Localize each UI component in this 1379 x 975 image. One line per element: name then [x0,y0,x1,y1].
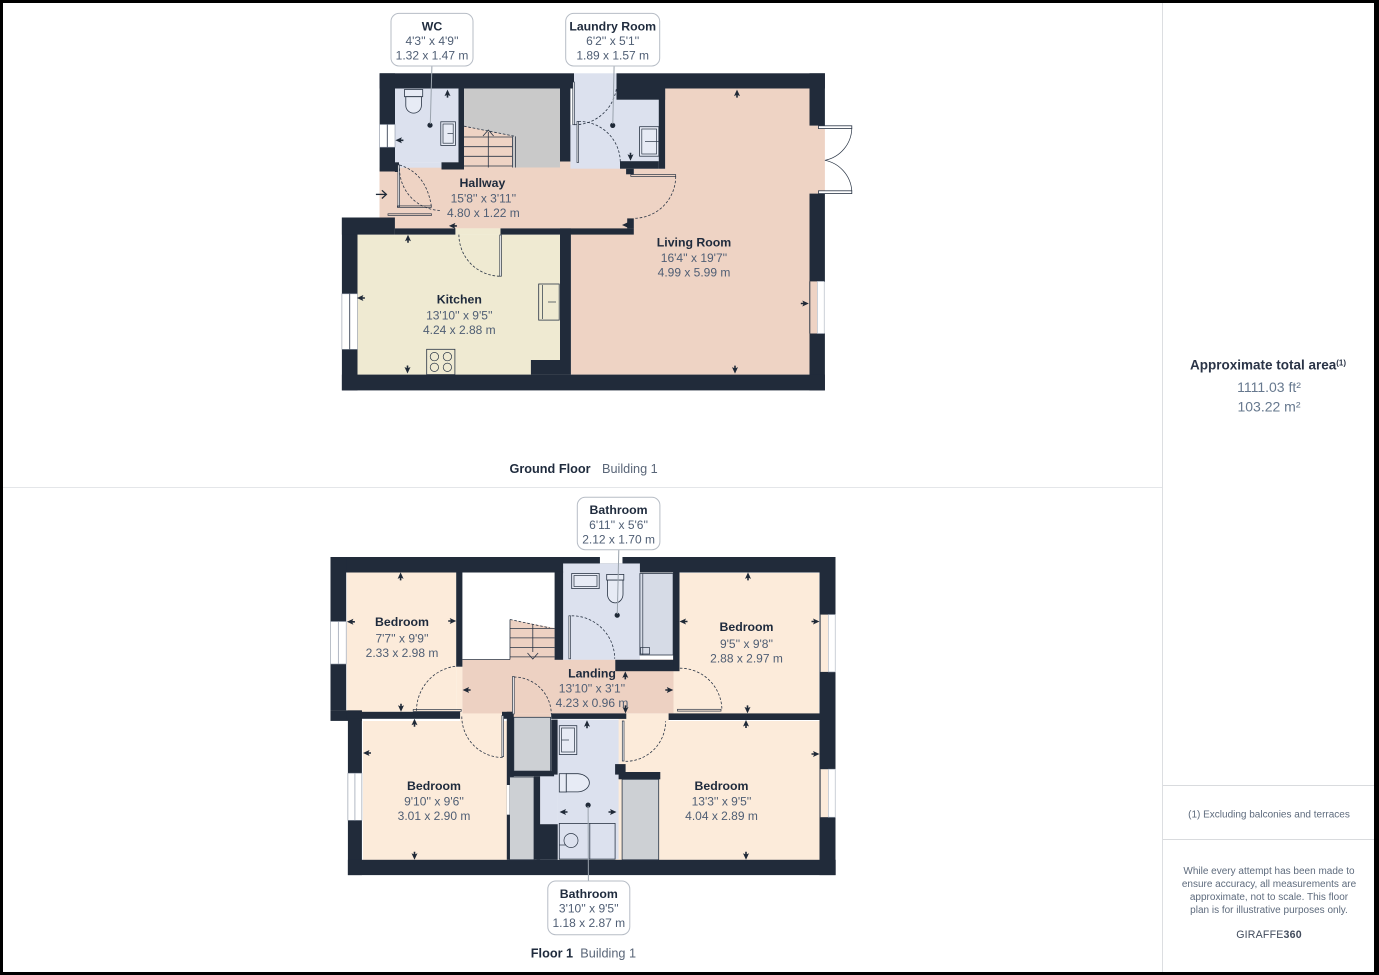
svg-text:plan is for illustrative purpo: plan is for illustrative purposes only. [1190,905,1348,916]
svg-text:2.88 x 2.97 m: 2.88 x 2.97 m [710,651,783,665]
svg-text:9'5'' x 9'8'': 9'5'' x 9'8'' [720,637,773,651]
svg-text:Building 1: Building 1 [602,462,658,476]
svg-text:Laundry Room: Laundry Room [569,19,656,33]
svg-text:16'4'' x 19'7'': 16'4'' x 19'7'' [661,251,727,265]
svg-text:Living Room: Living Room [657,235,732,249]
svg-text:Floor 1: Floor 1 [531,947,573,961]
svg-text:2.33 x 2.98 m: 2.33 x 2.98 m [366,646,439,660]
svg-text:Bathroom: Bathroom [560,887,618,901]
svg-text:4.23 x 0.96 m: 4.23 x 0.96 m [556,696,629,710]
svg-text:ensure accuracy, all measureme: ensure accuracy, all measurements are [1182,879,1357,890]
svg-text:Building 1: Building 1 [580,947,636,961]
svg-text:Kitchen: Kitchen [437,293,482,307]
svg-text:Bedroom: Bedroom [720,620,774,634]
svg-text:Bathroom: Bathroom [590,503,648,517]
svg-text:15'8'' x 3'11'': 15'8'' x 3'11'' [451,192,517,206]
svg-text:103.22 m²: 103.22 m² [1237,399,1300,415]
svg-text:While every attempt has been m: While every attempt has been made to [1183,866,1355,877]
svg-text:Landing: Landing [568,666,616,680]
svg-text:approximate, not to scale. Thi: approximate, not to scale. This floor [1190,892,1349,903]
svg-text:(1) Excluding balconies and te: (1) Excluding balconies and terraces [1188,810,1350,821]
svg-text:4'3'' x 4'9'': 4'3'' x 4'9'' [405,34,458,48]
svg-text:9'10'' x 9'6'': 9'10'' x 9'6'' [404,795,464,809]
svg-text:1111.03 ft²: 1111.03 ft² [1237,379,1301,395]
svg-text:6'11'' x 5'6'': 6'11'' x 5'6'' [589,518,648,532]
svg-text:Bedroom: Bedroom [695,779,749,793]
svg-text:4.24 x 2.88 m: 4.24 x 2.88 m [423,323,496,337]
svg-text:13'10'' x 9'5'': 13'10'' x 9'5'' [426,308,492,322]
svg-text:4.80 x 1.22 m: 4.80 x 1.22 m [447,206,520,220]
svg-text:Hallway: Hallway [460,176,506,190]
svg-text:WC: WC [422,19,443,33]
svg-text:3.01 x 2.90 m: 3.01 x 2.90 m [398,809,471,823]
svg-text:GIRAFFE360: GIRAFFE360 [1236,929,1302,941]
svg-text:Bedroom: Bedroom [407,779,461,793]
svg-text:1.18 x 2.87 m: 1.18 x 2.87 m [552,916,625,930]
svg-text:6'2'' x 5'1'': 6'2'' x 5'1'' [586,34,639,48]
svg-text:1.32 x 1.47 m: 1.32 x 1.47 m [396,49,469,63]
svg-text:3'10'' x 9'5'': 3'10'' x 9'5'' [559,902,619,916]
svg-text:13'10'' x 3'1'': 13'10'' x 3'1'' [559,682,625,696]
svg-text:2.12 x 1.70 m: 2.12 x 1.70 m [582,533,655,547]
svg-text:Approximate total area(1): Approximate total area(1) [1190,358,1346,373]
svg-text:7'7'' x 9'9'': 7'7'' x 9'9'' [375,631,428,645]
svg-text:1.89 x 1.57 m: 1.89 x 1.57 m [576,49,649,63]
svg-text:4.99 x 5.99 m: 4.99 x 5.99 m [658,266,731,280]
svg-text:Ground Floor: Ground Floor [510,462,591,476]
svg-text:Bedroom: Bedroom [375,615,429,629]
svg-text:13'3'' x 9'5'': 13'3'' x 9'5'' [692,795,752,809]
svg-text:4.04 x 2.89 m: 4.04 x 2.89 m [685,809,758,823]
